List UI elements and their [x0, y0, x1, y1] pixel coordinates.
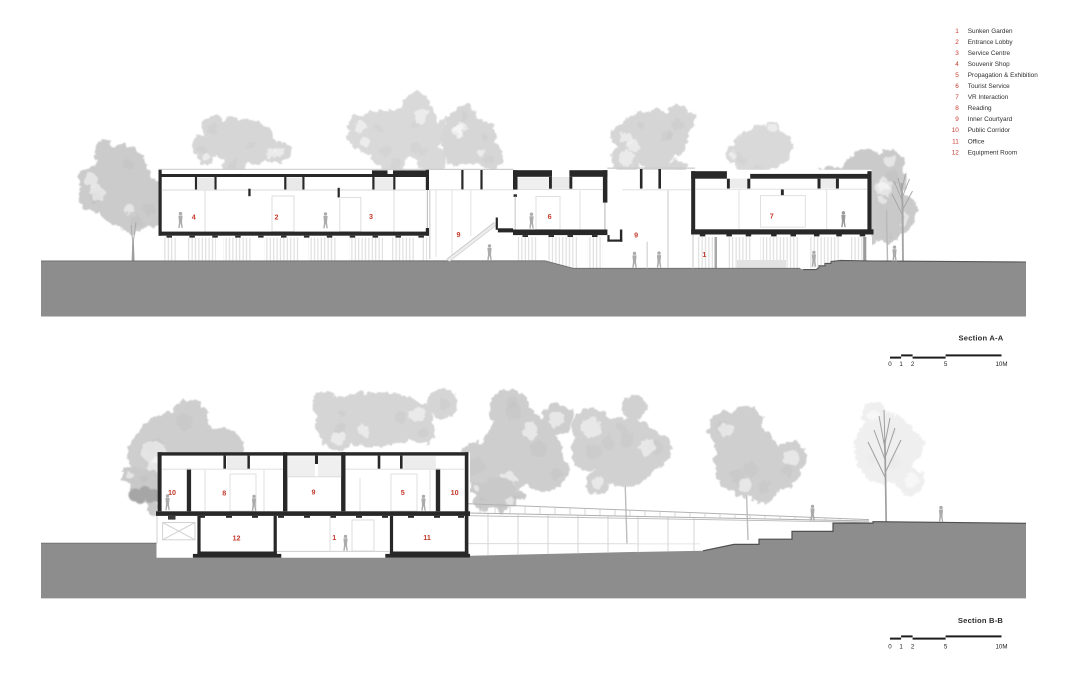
svg-text:Section B-B: Section B-B: [958, 616, 1004, 625]
svg-text:0: 0: [888, 643, 892, 650]
svg-text:5: 5: [955, 72, 959, 79]
svg-text:9: 9: [457, 230, 461, 239]
svg-text:1: 1: [702, 250, 706, 259]
svg-text:3: 3: [369, 212, 373, 221]
svg-text:11: 11: [952, 138, 959, 145]
svg-text:1: 1: [899, 643, 903, 650]
svg-text:2: 2: [911, 643, 915, 650]
svg-text:Tourist Service: Tourist Service: [968, 83, 1010, 90]
svg-text:10: 10: [451, 488, 459, 497]
svg-text:VR Interaction: VR Interaction: [968, 94, 1009, 101]
svg-text:Office: Office: [968, 138, 985, 145]
svg-text:Section A-A: Section A-A: [959, 334, 1004, 343]
svg-text:0: 0: [888, 361, 892, 368]
svg-text:3: 3: [955, 50, 959, 57]
svg-text:Entrance Lobby: Entrance Lobby: [968, 39, 1014, 46]
svg-text:Propagation & Exhibition: Propagation & Exhibition: [968, 72, 1038, 79]
svg-text:Souvenir Shop: Souvenir Shop: [968, 61, 1010, 68]
svg-text:Public Corridor: Public Corridor: [968, 127, 1011, 134]
svg-text:Equipment Room: Equipment Room: [968, 149, 1017, 156]
svg-text:2: 2: [275, 212, 279, 221]
svg-text:9: 9: [634, 231, 638, 240]
svg-text:7: 7: [770, 211, 774, 220]
svg-text:6: 6: [548, 212, 552, 221]
svg-text:4: 4: [955, 61, 959, 68]
svg-text:10: 10: [952, 127, 960, 134]
svg-text:Service Centre: Service Centre: [968, 50, 1011, 57]
svg-text:12: 12: [952, 149, 960, 156]
svg-text:10M: 10M: [995, 643, 1007, 650]
svg-text:1: 1: [955, 28, 959, 35]
svg-text:9: 9: [312, 488, 316, 497]
svg-text:12: 12: [233, 533, 241, 542]
svg-text:6: 6: [955, 83, 959, 90]
svg-text:10: 10: [168, 488, 176, 497]
svg-text:1: 1: [332, 533, 336, 542]
svg-text:Reading: Reading: [968, 105, 992, 112]
svg-text:4: 4: [192, 212, 196, 221]
svg-text:9: 9: [955, 116, 959, 123]
svg-text:7: 7: [955, 94, 959, 101]
svg-text:8: 8: [222, 489, 226, 498]
svg-text:1: 1: [899, 361, 903, 368]
svg-text:8: 8: [955, 105, 959, 112]
svg-text:5: 5: [401, 488, 405, 497]
svg-text:10M: 10M: [995, 361, 1007, 368]
svg-text:5: 5: [944, 361, 948, 368]
svg-text:5: 5: [944, 643, 948, 650]
svg-text:11: 11: [423, 533, 431, 542]
svg-text:2: 2: [955, 39, 959, 46]
svg-text:Inner Courtyard: Inner Courtyard: [968, 116, 1013, 123]
svg-text:2: 2: [911, 361, 915, 368]
svg-text:Sunken Garden: Sunken Garden: [968, 28, 1013, 35]
